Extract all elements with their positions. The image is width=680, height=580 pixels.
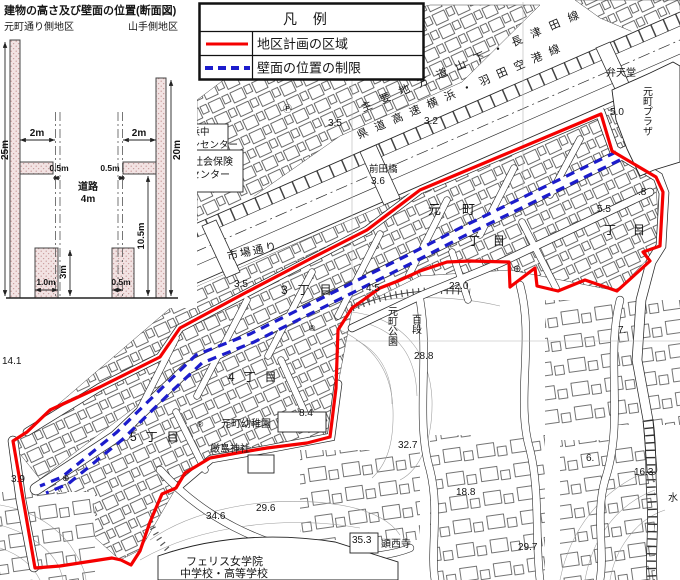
elevation: 4.5	[366, 283, 380, 294]
place-itsukushima-shrine: 厳島神社	[210, 442, 250, 455]
post-office-icon: ⊕	[62, 473, 70, 483]
elevation: 29.6	[256, 503, 276, 514]
place-motomachi-plaza: 元町プラザ	[641, 86, 653, 136]
district-chome1: 丁目	[604, 223, 662, 237]
district-chome5: 5丁目	[130, 430, 188, 444]
place-ferris-line1: フェリス女学院	[186, 554, 263, 568]
place-shakai-hoken-line1: 社会保険	[193, 155, 233, 168]
place-kindergarten: 元町幼稚園	[221, 417, 271, 430]
place-maedabashi: 前田橋	[369, 163, 398, 175]
elevation: 14.1	[2, 356, 22, 367]
legend-title: 凡 例	[283, 11, 333, 27]
elevation: 28.8	[414, 351, 434, 362]
post-office-icon: ⊕	[513, 264, 521, 275]
cross-section-diagram: 建物の高さ及び壁面の位置(断面図) 元町通り側地区 山手側地区 25m 20m …	[0, 0, 197, 308]
place-hyakudan: 百段	[410, 314, 422, 335]
dim-bottom-setback-right: 0.5m	[111, 277, 131, 287]
road-name-label: 道路	[78, 180, 99, 193]
city-plan-map-page: 主要地方道山下・長津田線 県道高速横浜・羽田空港線 市場通り 元町 丁目 丁目 …	[0, 0, 680, 580]
elevation: 16.3	[634, 467, 654, 478]
cross-section-title: 建物の高さ及び壁面の位置(断面図)	[4, 3, 177, 17]
elevation: 22.0	[449, 281, 469, 292]
legend-item-label: 壁面の位置の制限	[257, 61, 361, 76]
elevation: 3.2	[424, 116, 438, 127]
dim-top-setback-left: 2m	[30, 128, 45, 139]
dim-top-setback-right: 2m	[132, 128, 147, 139]
elevation: 8.4	[299, 408, 313, 419]
legend: 凡 例 地区計画の区域 壁面の位置の制限	[200, 4, 424, 80]
elevation: 35.3	[352, 535, 372, 546]
elevation: 7.	[618, 325, 626, 336]
elevation: 5.0	[610, 107, 624, 118]
dim-right-height: 20m	[172, 140, 183, 160]
district-motomachi: 元町	[428, 202, 496, 217]
place-motomachi-park: 元町公園	[386, 306, 398, 347]
dim-left-height: 25m	[0, 140, 11, 160]
registered-icon: ®	[197, 419, 204, 429]
elevation: 3.6	[371, 176, 385, 187]
dim-bottom-setback-left: 1.0m	[36, 277, 56, 287]
elevation: .8	[638, 187, 647, 198]
elevation: 3.9	[11, 474, 25, 485]
place-mizu: 水	[668, 492, 678, 504]
elevation: 29.7	[518, 542, 538, 553]
shrine-building	[248, 455, 274, 473]
legend-item-label: 地区計画の区域	[257, 37, 348, 52]
district-chome3: 3丁目	[281, 283, 342, 297]
dim-road-setback-right: 0.5m	[100, 163, 120, 173]
elevation: 18.8	[456, 487, 476, 498]
road-width-label: 4m	[81, 194, 96, 205]
place-ferris-line2: 中学校・高等学校	[180, 566, 268, 580]
elevation: 6.	[586, 453, 594, 464]
elevation: 34.6	[206, 511, 226, 522]
district-chome4: 4丁目	[228, 370, 286, 384]
place-kensaiji: 顕西寺	[381, 538, 411, 550]
registered-icon: ®	[309, 323, 316, 333]
map-canvas: 主要地方道山下・長津田線 県道高速横浜・羽田空港線 市場通り 元町 丁目 丁目 …	[0, 0, 680, 580]
elevation: 5.5	[597, 204, 611, 215]
parking-icon: Ⓟ	[283, 104, 292, 114]
elevation: 3.5	[234, 279, 248, 290]
district-chome2: 丁目	[468, 234, 518, 248]
dim-road-setback-left: 0.5m	[49, 163, 69, 173]
dim-mid-height: 10.5m	[136, 223, 147, 250]
left-area-label: 元町通り側地区	[4, 20, 74, 33]
dim-low-height: 3m	[58, 265, 69, 279]
right-area-label: 山手側地区	[128, 20, 178, 33]
place-bentendo: 弁天堂	[606, 66, 636, 79]
elevation: 3.5	[328, 118, 342, 129]
elevation: 32.7	[398, 440, 418, 451]
